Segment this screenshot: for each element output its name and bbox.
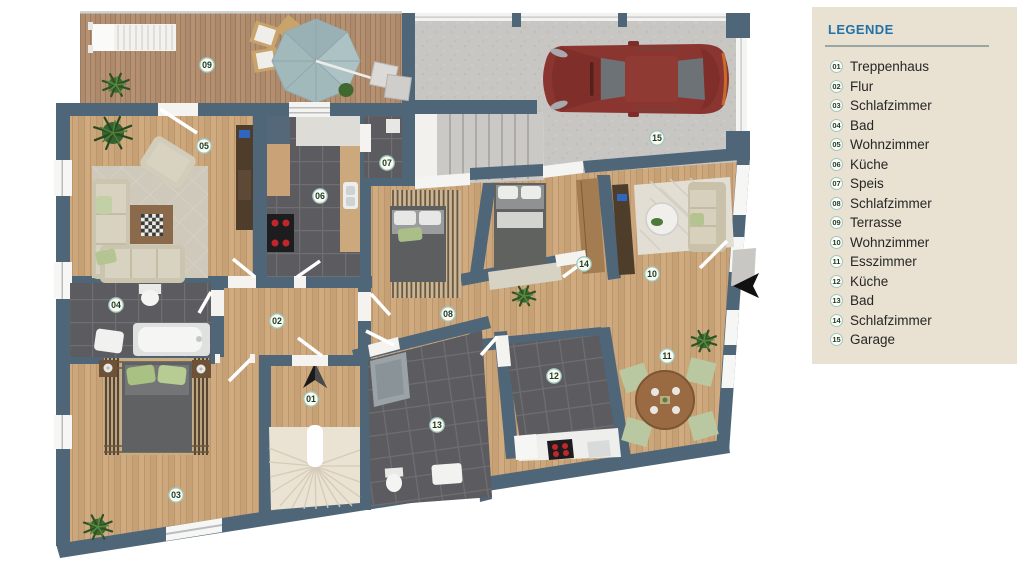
svg-text:05: 05 xyxy=(199,141,209,151)
svg-text:11: 11 xyxy=(662,351,671,361)
svg-text:04: 04 xyxy=(111,300,121,310)
svg-text:12: 12 xyxy=(549,371,559,381)
svg-text:02: 02 xyxy=(272,316,282,326)
svg-text:14: 14 xyxy=(579,259,589,269)
svg-text:15: 15 xyxy=(652,133,662,143)
svg-text:09: 09 xyxy=(202,60,212,70)
svg-text:07: 07 xyxy=(382,158,392,168)
svg-text:01: 01 xyxy=(306,394,316,404)
svg-text:03: 03 xyxy=(171,490,181,500)
svg-text:10: 10 xyxy=(647,269,657,279)
svg-text:08: 08 xyxy=(443,309,453,319)
svg-text:13: 13 xyxy=(432,420,442,430)
svg-text:06: 06 xyxy=(315,191,325,201)
